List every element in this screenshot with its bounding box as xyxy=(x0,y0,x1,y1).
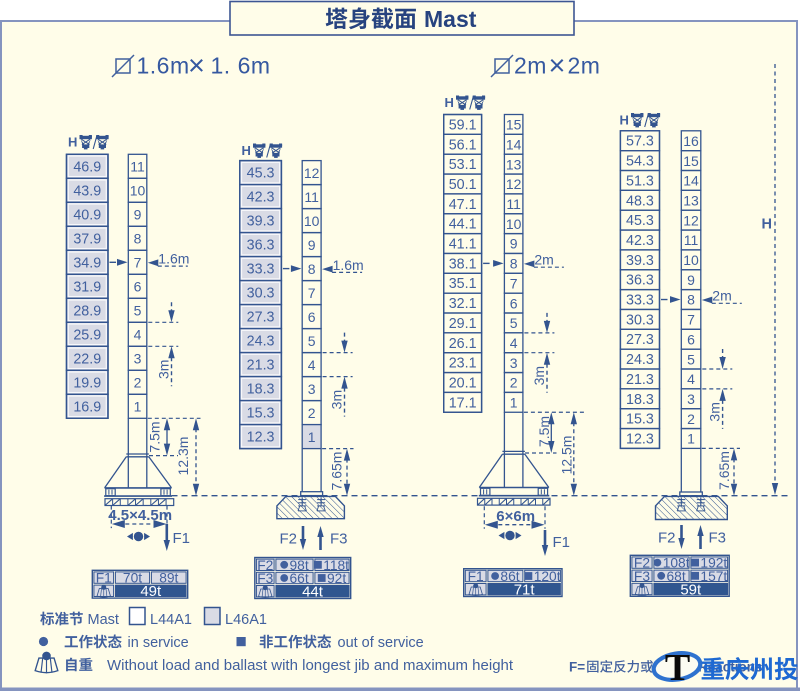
svg-text:2: 2 xyxy=(687,411,695,427)
svg-text:1.6m: 1.6m xyxy=(137,53,190,79)
svg-text:4: 4 xyxy=(510,335,518,351)
svg-text:3m: 3m xyxy=(329,390,345,409)
svg-text:34.9: 34.9 xyxy=(73,255,101,271)
svg-text:6: 6 xyxy=(687,331,695,347)
svg-text:50.1: 50.1 xyxy=(449,177,477,193)
svg-text:F2: F2 xyxy=(280,531,298,548)
svg-text:3: 3 xyxy=(134,351,142,367)
svg-text:1: 1 xyxy=(687,431,695,447)
svg-text:42.3: 42.3 xyxy=(247,190,275,206)
svg-text:59t: 59t xyxy=(680,581,702,598)
svg-text:8: 8 xyxy=(510,256,518,272)
svg-text:54.3: 54.3 xyxy=(626,154,654,170)
svg-text:20.1: 20.1 xyxy=(449,375,477,391)
svg-text:out of service: out of service xyxy=(338,635,424,651)
svg-text:71t: 71t xyxy=(514,582,536,599)
svg-text:15: 15 xyxy=(683,153,699,169)
svg-text:45.3: 45.3 xyxy=(626,213,654,229)
svg-text:H: H xyxy=(445,95,454,110)
svg-text:7: 7 xyxy=(510,275,518,291)
svg-text:16.9: 16.9 xyxy=(73,399,101,415)
svg-text:3m: 3m xyxy=(707,402,723,421)
svg-text:H: H xyxy=(242,143,251,158)
svg-text:5: 5 xyxy=(687,351,695,367)
svg-text:49t: 49t xyxy=(140,583,162,600)
svg-text:26.1: 26.1 xyxy=(449,336,477,352)
svg-text:6: 6 xyxy=(510,295,518,311)
svg-text:1: 1 xyxy=(134,399,142,415)
svg-text:3: 3 xyxy=(687,391,695,407)
svg-text:12.5m: 12.5m xyxy=(558,436,574,475)
svg-text:5: 5 xyxy=(134,303,142,319)
svg-text:29.1: 29.1 xyxy=(449,316,477,332)
svg-text:5: 5 xyxy=(308,333,316,349)
svg-text:4: 4 xyxy=(134,327,142,343)
svg-text:F3: F3 xyxy=(330,531,348,548)
svg-text:2m: 2m xyxy=(514,53,547,79)
svg-text:10: 10 xyxy=(683,252,699,268)
svg-text:56.1: 56.1 xyxy=(449,137,477,153)
svg-text:47.1: 47.1 xyxy=(449,197,477,213)
svg-text:6×6m: 6×6m xyxy=(496,508,535,525)
svg-text:13: 13 xyxy=(683,192,699,208)
svg-text:35.1: 35.1 xyxy=(449,276,477,292)
svg-text:10: 10 xyxy=(130,183,146,199)
svg-text:22.9: 22.9 xyxy=(73,351,101,367)
svg-text:39.3: 39.3 xyxy=(247,214,275,230)
svg-text:12.3: 12.3 xyxy=(626,431,654,447)
svg-text:7.65m: 7.65m xyxy=(329,452,345,491)
svg-text:43.9: 43.9 xyxy=(73,183,101,199)
svg-text:L44A1: L44A1 xyxy=(150,612,192,628)
svg-text:H: H xyxy=(762,217,772,233)
svg-text:8: 8 xyxy=(687,292,695,308)
svg-text:4.5×4.5m: 4.5×4.5m xyxy=(108,507,172,524)
svg-text:2: 2 xyxy=(308,405,316,421)
svg-text:15.3: 15.3 xyxy=(626,412,654,428)
svg-text:10: 10 xyxy=(506,216,522,232)
svg-text:7: 7 xyxy=(134,255,142,271)
svg-text:14: 14 xyxy=(683,173,699,189)
svg-text:11: 11 xyxy=(304,189,319,205)
svg-text:3m: 3m xyxy=(531,366,547,385)
svg-text:28.9: 28.9 xyxy=(73,303,101,319)
svg-text:24.3: 24.3 xyxy=(247,334,275,350)
svg-text:10: 10 xyxy=(304,213,320,229)
svg-text:36.3: 36.3 xyxy=(626,273,654,289)
svg-text:41.1: 41.1 xyxy=(449,237,477,253)
svg-text:8: 8 xyxy=(308,261,316,277)
svg-text:37.9: 37.9 xyxy=(73,231,101,247)
svg-text:4: 4 xyxy=(308,357,316,373)
svg-text:31.9: 31.9 xyxy=(73,279,101,295)
svg-text:F1: F1 xyxy=(553,534,571,551)
svg-text:12.3m: 12.3m xyxy=(175,437,191,476)
svg-text:25.9: 25.9 xyxy=(73,327,101,343)
svg-text:2m: 2m xyxy=(712,288,731,304)
svg-text:6: 6 xyxy=(134,279,142,295)
svg-text:48.3: 48.3 xyxy=(626,193,654,209)
svg-text:F1: F1 xyxy=(96,571,112,586)
svg-text:12.3: 12.3 xyxy=(247,430,275,446)
svg-text:38.1: 38.1 xyxy=(449,256,477,272)
svg-text:7.5m: 7.5m xyxy=(147,421,163,452)
svg-text:44t: 44t xyxy=(302,584,324,601)
svg-text:12: 12 xyxy=(506,176,522,192)
svg-text:15: 15 xyxy=(506,117,522,133)
svg-text:57.3: 57.3 xyxy=(626,134,654,150)
svg-text:59.1: 59.1 xyxy=(449,117,477,133)
svg-text:T: T xyxy=(665,647,690,689)
svg-text:Without load and ballast with: Without load and ballast with longest ji… xyxy=(107,657,514,674)
svg-text:Mast: Mast xyxy=(88,612,119,628)
svg-text:L46A1: L46A1 xyxy=(225,612,267,628)
svg-text:27.3: 27.3 xyxy=(247,310,275,326)
svg-text:19.9: 19.9 xyxy=(73,375,101,391)
svg-text:23.1: 23.1 xyxy=(449,356,477,372)
svg-text:39.3: 39.3 xyxy=(626,253,654,269)
svg-text:157t: 157t xyxy=(700,569,727,584)
svg-text:H: H xyxy=(68,135,77,150)
svg-text:6: 6 xyxy=(308,309,316,325)
svg-text:1. 6m: 1. 6m xyxy=(211,53,271,79)
svg-text:2m: 2m xyxy=(534,252,553,268)
svg-text:2m: 2m xyxy=(568,53,601,79)
svg-text:12: 12 xyxy=(304,165,320,181)
svg-text:33.3: 33.3 xyxy=(247,262,275,278)
svg-text:17.1: 17.1 xyxy=(449,395,477,411)
svg-text:7: 7 xyxy=(308,285,316,301)
svg-text:2: 2 xyxy=(134,375,142,391)
svg-text:13: 13 xyxy=(506,156,522,172)
svg-text:51.3: 51.3 xyxy=(626,173,654,189)
svg-text:53.1: 53.1 xyxy=(449,157,477,173)
svg-text:9: 9 xyxy=(510,236,518,252)
svg-text:89t: 89t xyxy=(159,571,178,586)
svg-text:16: 16 xyxy=(683,133,699,149)
svg-text:14: 14 xyxy=(506,136,522,152)
svg-text:21.3: 21.3 xyxy=(247,358,275,374)
svg-text:3: 3 xyxy=(308,381,316,397)
svg-text:7.65m: 7.65m xyxy=(716,451,732,490)
svg-text:F1: F1 xyxy=(468,569,484,584)
svg-text:18.3: 18.3 xyxy=(247,382,275,398)
svg-text:×: × xyxy=(188,50,205,82)
svg-text:33.3: 33.3 xyxy=(626,293,654,309)
svg-text:7: 7 xyxy=(687,312,695,328)
svg-text:40.9: 40.9 xyxy=(73,207,101,223)
svg-text:H: H xyxy=(620,113,629,128)
svg-text:1.6m: 1.6m xyxy=(333,257,364,273)
svg-text:21.3: 21.3 xyxy=(626,372,654,388)
svg-text:F3: F3 xyxy=(709,530,727,547)
svg-text:30.3: 30.3 xyxy=(247,286,275,302)
svg-text:15.3: 15.3 xyxy=(247,406,275,422)
svg-text:3m: 3m xyxy=(156,360,172,379)
svg-text:F3: F3 xyxy=(257,571,273,586)
svg-text:9: 9 xyxy=(308,237,316,253)
svg-text:30.3: 30.3 xyxy=(626,312,654,328)
svg-text:F2: F2 xyxy=(658,530,676,547)
svg-text:F1: F1 xyxy=(173,530,191,547)
svg-text:120t: 120t xyxy=(534,569,561,584)
svg-text:1.6m: 1.6m xyxy=(158,251,189,267)
svg-text:11: 11 xyxy=(684,232,699,248)
svg-text:9: 9 xyxy=(134,207,142,223)
svg-text:32.1: 32.1 xyxy=(449,296,477,312)
svg-text:45.3: 45.3 xyxy=(247,166,275,182)
svg-text:1: 1 xyxy=(308,429,316,445)
svg-text:1: 1 xyxy=(510,395,518,411)
svg-text:9: 9 xyxy=(687,272,695,288)
svg-text:Mast: Mast xyxy=(424,6,477,32)
svg-text:44.1: 44.1 xyxy=(449,217,477,233)
svg-text:27.3: 27.3 xyxy=(626,332,654,348)
svg-text:24.3: 24.3 xyxy=(626,352,654,368)
svg-text:11: 11 xyxy=(506,196,521,212)
svg-text:12: 12 xyxy=(683,212,699,228)
svg-text:42.3: 42.3 xyxy=(626,233,654,249)
svg-text:18.3: 18.3 xyxy=(626,392,654,408)
svg-text:46.9: 46.9 xyxy=(73,159,101,175)
svg-text:3: 3 xyxy=(510,355,518,371)
svg-text:92t: 92t xyxy=(327,571,346,586)
svg-text:×: × xyxy=(549,50,566,82)
svg-text:36.3: 36.3 xyxy=(247,238,275,254)
svg-text:8: 8 xyxy=(134,231,142,247)
svg-text:F=: F= xyxy=(569,660,585,675)
svg-text:7.5m: 7.5m xyxy=(536,416,552,447)
svg-text:4: 4 xyxy=(687,371,695,387)
svg-text:11: 11 xyxy=(130,159,145,175)
svg-text:2: 2 xyxy=(510,375,518,391)
svg-text:F3: F3 xyxy=(634,569,650,584)
svg-text:5: 5 xyxy=(510,315,518,331)
svg-text:in service: in service xyxy=(128,635,189,651)
